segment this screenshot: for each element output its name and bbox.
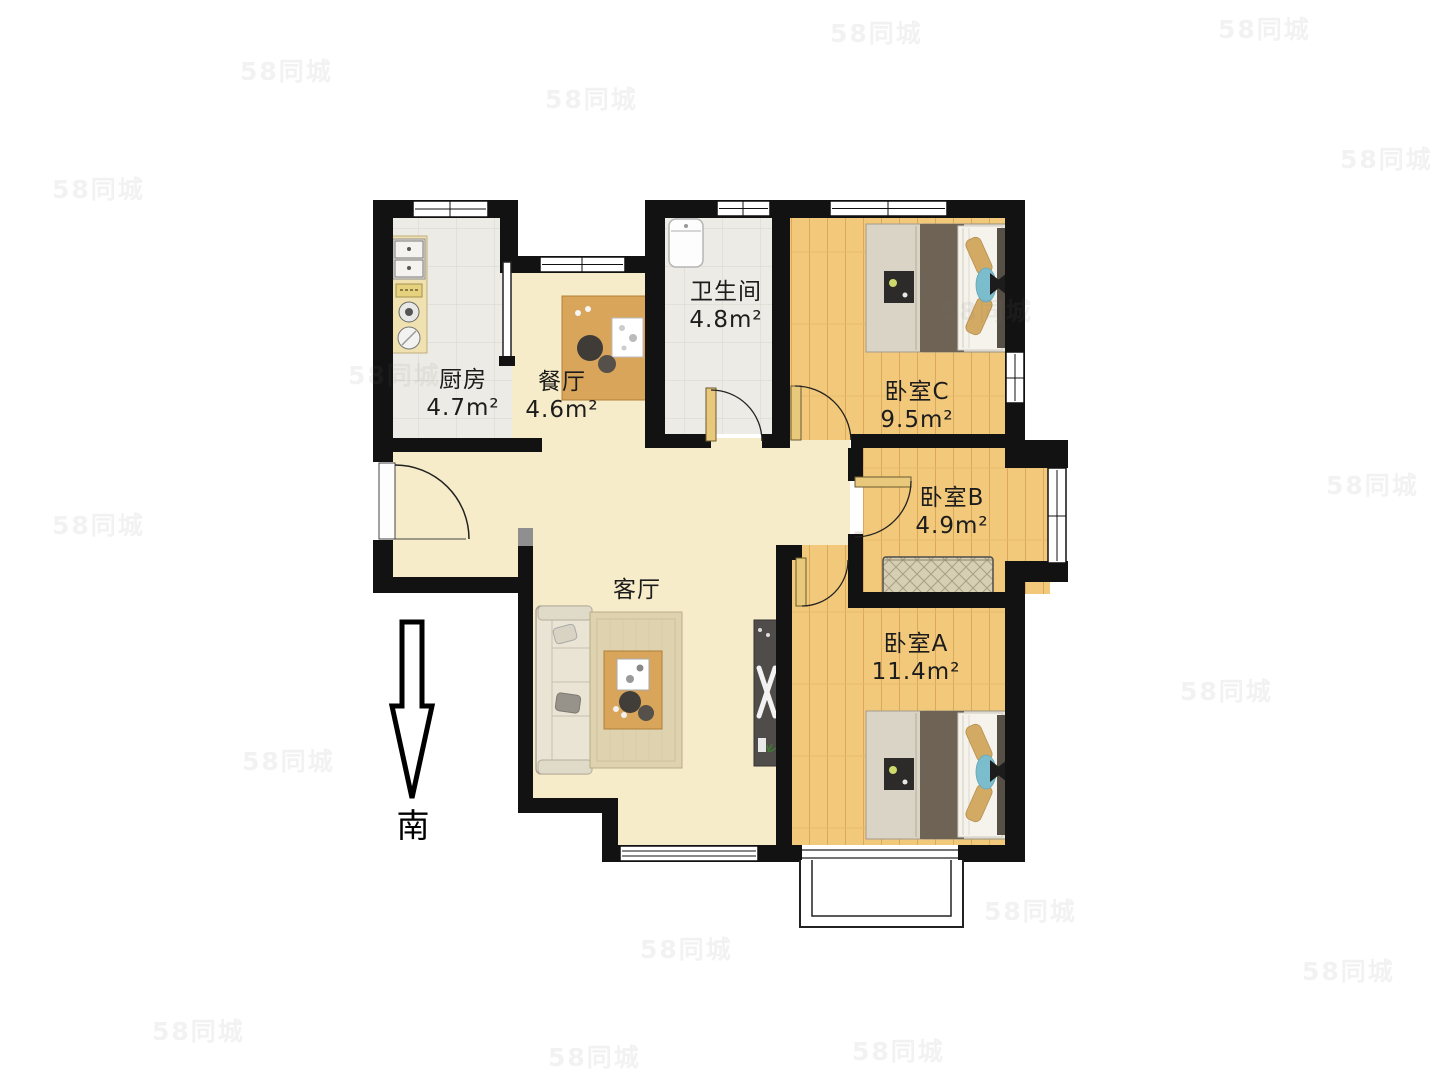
compass-south-arrow [392, 622, 432, 798]
room-name: 卧室A [884, 631, 949, 657]
wall-pillar-cap [518, 528, 533, 546]
room-name: 客厅 [613, 577, 661, 603]
kitchen-counter [391, 236, 427, 353]
glass-partition [503, 262, 511, 362]
bay-window-bedroom-a [800, 845, 963, 927]
window-bedroom-b [1048, 468, 1066, 563]
window-living [620, 846, 758, 861]
wall-segment [1005, 582, 1025, 862]
window-dining [540, 257, 625, 272]
room-area: 9.5m² [852, 406, 982, 434]
window-kitchen [413, 201, 488, 217]
wall-segment [1005, 561, 1068, 582]
bench-icon [883, 557, 993, 597]
wall-segment [499, 356, 515, 366]
toilet-icon [669, 219, 703, 267]
window-bedroom-c-side [1006, 352, 1024, 403]
tray-icon [612, 318, 643, 357]
room-area: 11.4m² [851, 658, 981, 686]
floor-plan-svg [0, 0, 1440, 1080]
room-name: 厨房 [439, 367, 487, 393]
room-label-bedroom-c: 卧室C 9.5m² [852, 378, 982, 434]
room-label-bedroom-b: 卧室B 4.9m² [887, 484, 1017, 540]
wall-segment [848, 534, 863, 594]
room-area: 4.9m² [887, 512, 1017, 540]
floor-plan-page: 了家 Jinleju [0, 0, 1440, 1080]
wall-segment [1005, 440, 1068, 468]
south-label: 南 [378, 808, 448, 844]
coffee-table [604, 651, 662, 729]
window-bathroom [717, 201, 770, 216]
window-bedroom-c-top [830, 201, 947, 216]
room-name: 餐厅 [538, 369, 586, 395]
wall-segment [518, 798, 618, 813]
living-floor-south [617, 798, 792, 845]
wall-segment [1005, 218, 1025, 442]
bed-icon-bedroom-c [866, 224, 1008, 352]
sofa-icon [536, 606, 592, 774]
wall-segment [645, 434, 711, 448]
wall-segment [851, 434, 1007, 448]
wall-segment [776, 545, 792, 845]
room-area: 4.6m² [497, 396, 627, 424]
bed-icon-bedroom-a [866, 711, 1008, 839]
wall-segment [373, 438, 542, 452]
room-label-dining: 餐厅 4.6m² [497, 368, 627, 424]
wall-segment [848, 448, 863, 481]
teapot-icon [577, 335, 603, 361]
wall-segment [373, 577, 533, 593]
wall-segment [602, 813, 618, 862]
room-name: 卧室C [884, 379, 949, 405]
room-label-bedroom-a: 卧室A 11.4m² [851, 630, 981, 686]
room-area: 4.8m² [661, 306, 791, 334]
room-label-bathroom: 卫生间 4.8m² [661, 278, 791, 334]
room-name: 卧室B [920, 485, 985, 511]
wall-segment [958, 845, 1007, 862]
stove-controls [396, 284, 422, 297]
room-name: 卫生间 [690, 279, 762, 305]
room-label-living: 客厅 [572, 576, 702, 604]
wall-segment [848, 592, 1007, 608]
